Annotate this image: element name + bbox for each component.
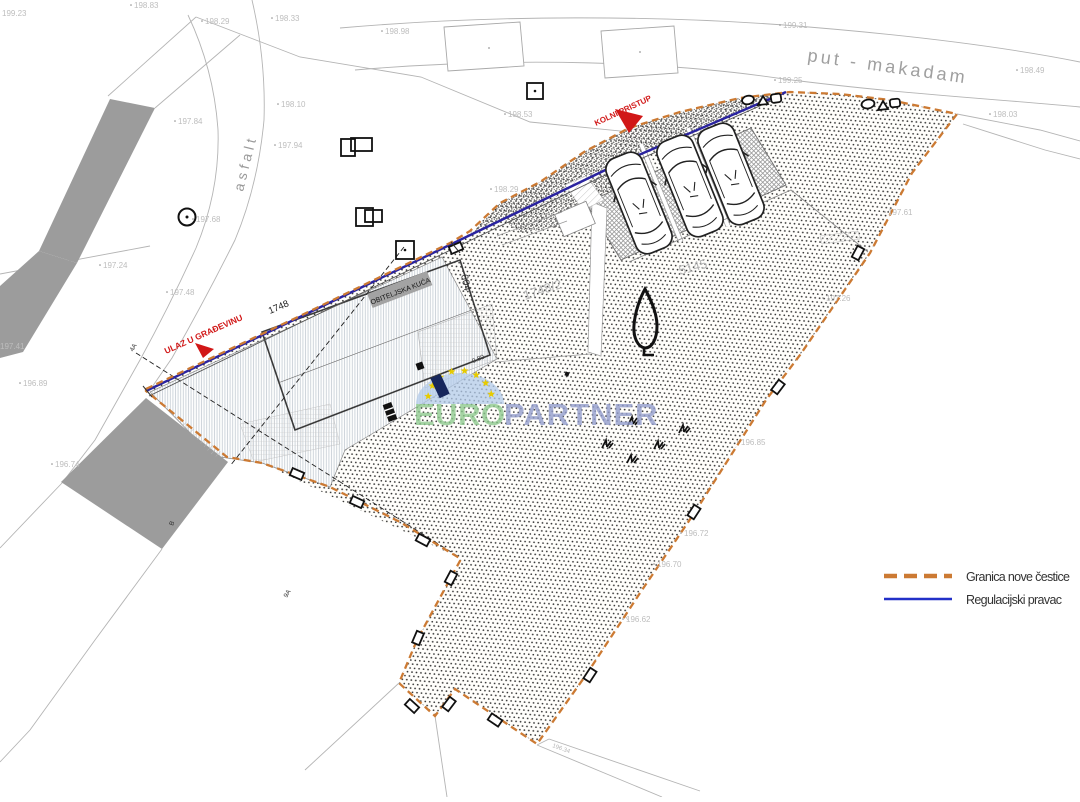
svg-text:197.61: 197.61 bbox=[888, 208, 913, 217]
svg-text:196.72: 196.72 bbox=[684, 529, 709, 538]
svg-text:198.98: 198.98 bbox=[385, 27, 410, 36]
svg-text:198.29: 198.29 bbox=[494, 185, 519, 194]
svg-text:EURO: EURO bbox=[414, 397, 506, 432]
svg-text:198.53: 198.53 bbox=[508, 110, 533, 119]
svg-text:196.62: 196.62 bbox=[626, 615, 651, 624]
svg-text:196.74: 196.74 bbox=[55, 460, 80, 469]
svg-text:198.49: 198.49 bbox=[1020, 66, 1045, 75]
svg-text:198.10: 198.10 bbox=[281, 100, 306, 109]
svg-text:199.23: 199.23 bbox=[2, 9, 27, 18]
svg-text:196.70: 196.70 bbox=[657, 560, 682, 569]
svg-text:198.03: 198.03 bbox=[993, 110, 1018, 119]
svg-text:197.94: 197.94 bbox=[278, 141, 303, 150]
svg-text:199.25: 199.25 bbox=[778, 76, 803, 85]
svg-text:197.24: 197.24 bbox=[103, 261, 128, 270]
svg-text:197.48: 197.48 bbox=[170, 288, 195, 297]
svg-text:198.29: 198.29 bbox=[205, 17, 230, 26]
svg-text:PARTNER: PARTNER bbox=[504, 397, 659, 432]
svg-text:196.85: 196.85 bbox=[741, 438, 766, 447]
svg-text:197.26: 197.26 bbox=[826, 294, 851, 303]
svg-text:198.33: 198.33 bbox=[275, 14, 300, 23]
svg-text:Regulacijski pravac: Regulacijski pravac bbox=[966, 593, 1062, 607]
svg-text:197.84: 197.84 bbox=[178, 117, 203, 126]
svg-text:198.83: 198.83 bbox=[134, 1, 159, 10]
svg-text:199.31: 199.31 bbox=[783, 21, 808, 30]
svg-text:197.68: 197.68 bbox=[196, 215, 221, 224]
svg-text:Granica nove čestice: Granica nove čestice bbox=[966, 570, 1070, 584]
svg-text:197.41: 197.41 bbox=[0, 342, 25, 351]
svg-text:196.89: 196.89 bbox=[23, 379, 48, 388]
